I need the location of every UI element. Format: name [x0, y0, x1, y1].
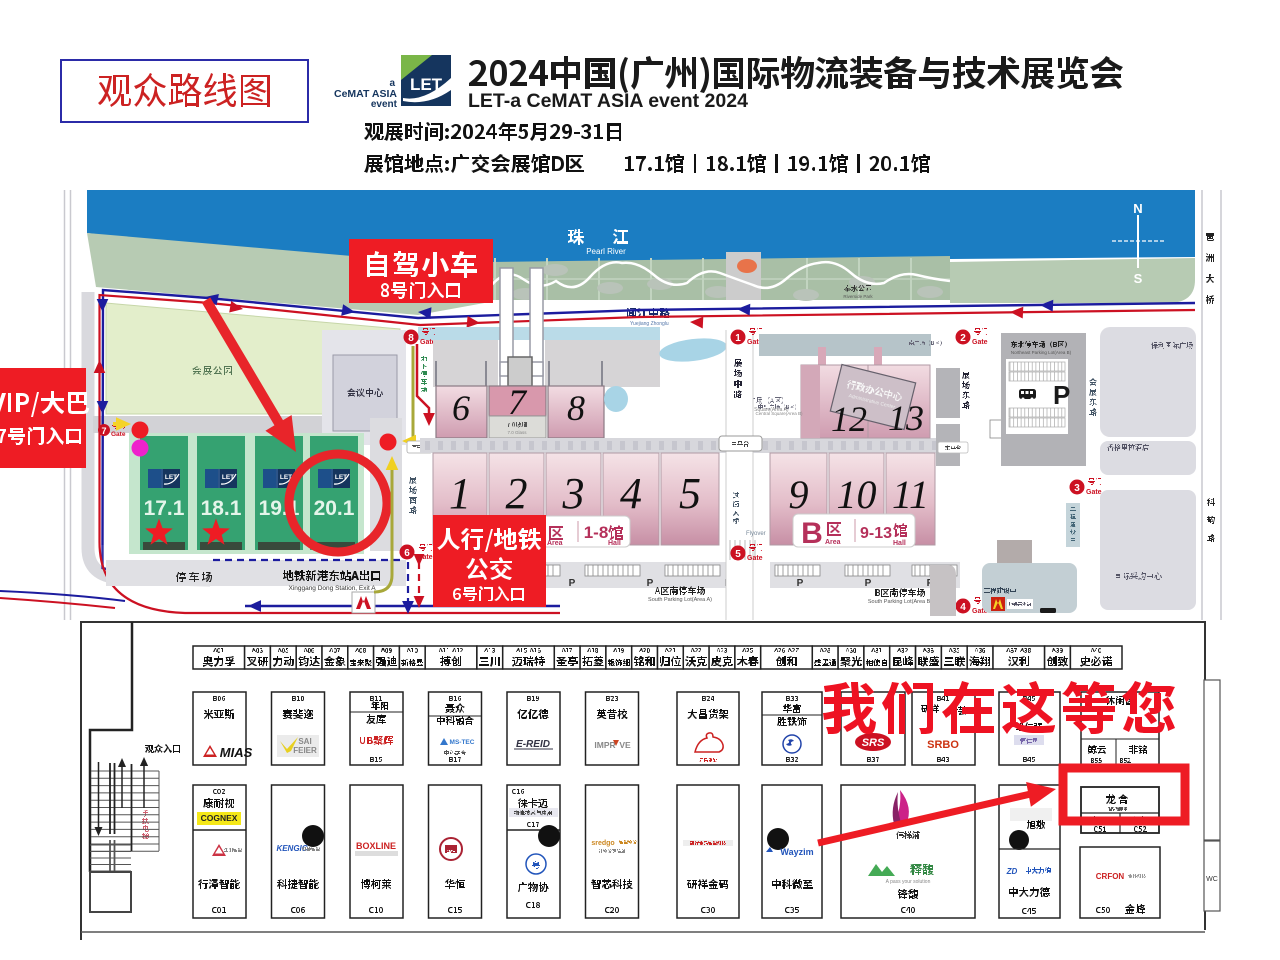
svg-text:1: 1 — [449, 469, 471, 518]
svg-text:3: 3 — [1074, 483, 1080, 494]
svg-text:CRFON: CRFON — [1096, 872, 1125, 881]
svg-text:P: P — [1053, 380, 1070, 410]
svg-text:P: P — [865, 578, 872, 589]
svg-text:1-8: 1-8 — [584, 523, 609, 542]
svg-text:LET: LET — [222, 474, 234, 481]
svg-text:12: 12 — [831, 399, 867, 439]
svg-text:18.1: 18.1 — [201, 497, 242, 520]
svg-text:SRS: SRS — [862, 737, 885, 749]
svg-text:Northeast Parking Lot(Area B): Northeast Parking Lot(Area B) — [1011, 350, 1072, 355]
svg-text:LET-a CeMAT ASIA event 2024: LET-a CeMAT ASIA event 2024 — [468, 90, 748, 112]
svg-text:2: 2 — [960, 333, 966, 344]
svg-text:Flyover: Flyover — [746, 531, 766, 537]
svg-text:Area: Area — [825, 539, 841, 546]
svg-text:Area: Area — [547, 540, 563, 547]
svg-text:4: 4 — [620, 469, 642, 518]
svg-text:11: 11 — [892, 472, 929, 517]
svg-text:ZD: ZD — [1006, 867, 1018, 876]
svg-text:MIAS: MIAS — [220, 745, 253, 760]
svg-text:Xinggang Dong Station, Exit A: Xinggang Dong Station, Exit A — [288, 585, 376, 592]
svg-text:event: event — [371, 99, 398, 110]
svg-text:Riverside Park: Riverside Park — [843, 294, 873, 299]
svg-text:SRBO: SRBO — [927, 739, 959, 751]
svg-text:WC: WC — [1206, 876, 1218, 883]
svg-text:7: 7 — [101, 426, 106, 436]
svg-text:MS-TEC: MS-TEC — [450, 739, 475, 746]
svg-text:10: 10 — [837, 472, 877, 517]
svg-text:IMPR: IMPR — [594, 740, 615, 750]
svg-text:5: 5 — [679, 469, 701, 518]
svg-text:LET: LET — [165, 474, 177, 481]
svg-text:9: 9 — [789, 472, 809, 517]
svg-text:BOXLINE: BOXLINE — [356, 841, 396, 851]
svg-text:9-13: 9-13 — [860, 525, 892, 542]
svg-text:Central Square(Area B): Central Square(Area B) — [755, 411, 803, 416]
svg-text:N: N — [1133, 201, 1142, 216]
svg-text:2: 2 — [506, 469, 528, 518]
svg-text:13: 13 — [888, 398, 924, 438]
svg-text:Yuejiang Zhonglu: Yuejiang Zhonglu — [630, 321, 669, 327]
svg-text:South Parking Lot(Area A): South Parking Lot(Area A) — [648, 597, 712, 603]
svg-text:FEIER: FEIER — [293, 746, 317, 755]
svg-text:6: 6 — [404, 548, 410, 559]
svg-text:B: B — [801, 517, 823, 550]
svg-text:Gate: Gate — [747, 555, 763, 562]
svg-text:LET: LET — [410, 75, 443, 94]
svg-text:E-REID: E-REID — [516, 739, 550, 750]
svg-text:8: 8 — [408, 333, 414, 344]
svg-text:P: P — [569, 578, 576, 589]
svg-text:South Parking Lot(Area B): South Parking Lot(Area B) — [868, 599, 932, 605]
svg-text:P: P — [797, 578, 804, 589]
svg-text:Hall: Hall — [608, 540, 621, 547]
svg-text:7.0 Glass: 7.0 Glass — [507, 430, 527, 435]
svg-text:Gate: Gate — [972, 339, 988, 346]
svg-text:6: 6 — [452, 388, 470, 428]
svg-text:20.1: 20.1 — [314, 497, 355, 520]
svg-text:1: 1 — [735, 333, 741, 344]
svg-text:3: 3 — [562, 469, 585, 518]
svg-text:LET: LET — [335, 474, 347, 481]
svg-text:Gate: Gate — [1086, 489, 1102, 496]
svg-text:Pearl River: Pearl River — [586, 247, 626, 256]
svg-text:17.1: 17.1 — [144, 497, 185, 520]
svg-text:Gate: Gate — [111, 431, 126, 438]
svg-text:Hall: Hall — [893, 540, 906, 547]
svg-text:Wayzim: Wayzim — [780, 847, 813, 857]
svg-text:SAI: SAI — [298, 737, 311, 746]
svg-text:sredgo: sredgo — [591, 840, 614, 847]
svg-text:P: P — [647, 578, 654, 589]
svg-text:4: 4 — [960, 602, 966, 613]
svg-text:8: 8 — [567, 388, 585, 428]
svg-text:S: S — [1134, 271, 1143, 286]
svg-text:A pass your solution: A pass your solution — [886, 879, 931, 885]
svg-text:5: 5 — [735, 549, 741, 560]
svg-text:COGNEX: COGNEX — [201, 813, 238, 823]
svg-text:VE: VE — [619, 740, 631, 750]
